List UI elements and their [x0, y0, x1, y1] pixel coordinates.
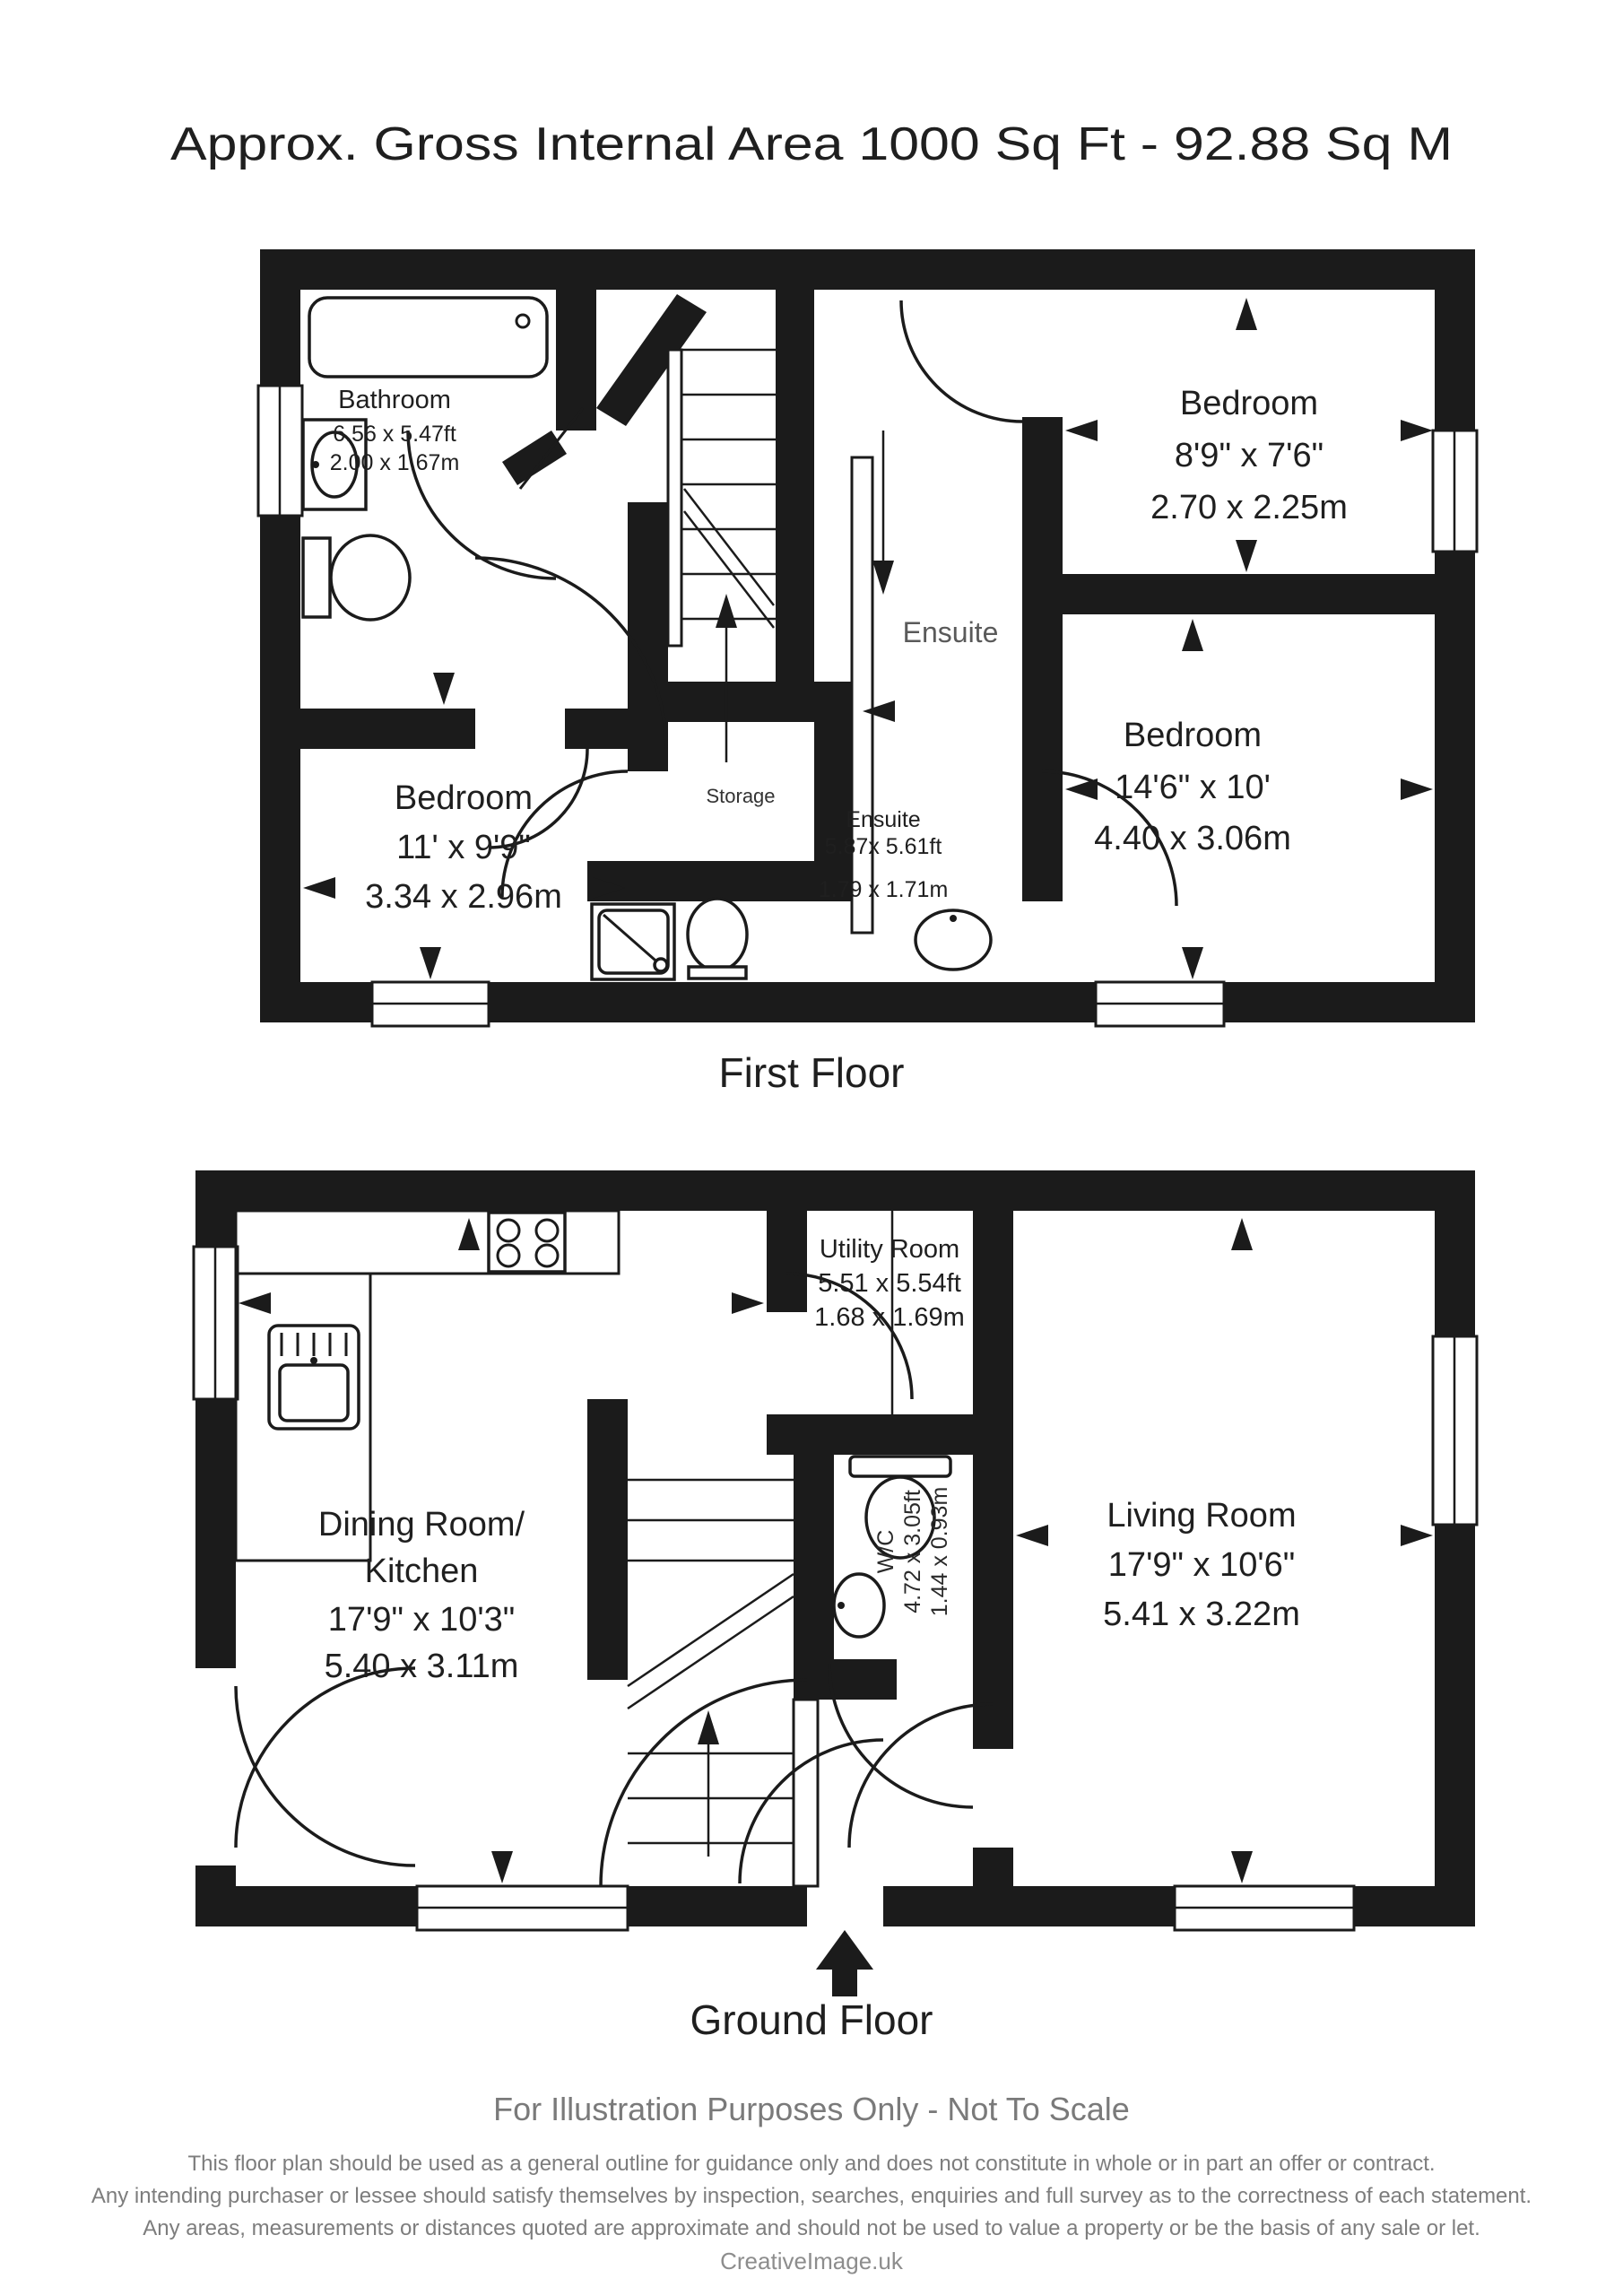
- ensuite-big-label: Ensuite: [903, 616, 999, 648]
- stair-down-arrow: [872, 430, 894, 595]
- window: [1433, 1336, 1477, 1525]
- wc-sink: [834, 1574, 884, 1637]
- dining-label-line2: Kitchen: [365, 1552, 479, 1590]
- footer-disclaimer-line3: Any areas, measurements or distances quo…: [143, 2216, 1480, 2240]
- bathroom-label: Bathroom: [338, 386, 451, 414]
- bathroom-toilet: [303, 535, 410, 620]
- ensuite-sink: [916, 910, 991, 970]
- ensuite-fixtures: [592, 899, 991, 979]
- bathtub: [309, 298, 547, 377]
- footer: For Illustration Purposes Only - Not To …: [91, 2091, 1532, 2274]
- floorplan-canvas: Approx. Gross Internal Area 1000 Sq Ft -…: [0, 0, 1623, 2296]
- bedroom-topright-dims-m: 2.70 x 2.25m: [1150, 489, 1348, 526]
- measure-arrow-up: [1236, 298, 1257, 330]
- bedroom-right-dims-ft: 14'6" x 10': [1115, 769, 1271, 806]
- page-title: Approx. Gross Internal Area 1000 Sq Ft -…: [170, 118, 1453, 170]
- footer-brand: CreativeImage.uk: [720, 2248, 904, 2274]
- bathroom-dims-m: 2.00 x 1.67m: [330, 450, 460, 475]
- measure-arrow-down: [420, 947, 441, 979]
- bedroom-left-dims-m: 3.34 x 2.96m: [365, 878, 562, 916]
- measure-arrow-up: [1182, 619, 1203, 651]
- measure-arrow-down: [491, 1851, 513, 1883]
- stair-treads: [681, 350, 776, 619]
- measure-arrow-right: [1401, 778, 1433, 800]
- measure-arrow-down: [1231, 1851, 1253, 1883]
- measure-arrow-up: [458, 1218, 480, 1250]
- bedroom-left-dims-ft: 11' x 9'9": [396, 829, 531, 866]
- ensuite-small-dims-m: 1.79 x 1.71m: [819, 877, 949, 902]
- first-floor-plan: Bathroom 6.56 x 5.47ft 2.00 x 1.67m Bedr…: [258, 249, 1477, 1096]
- wc-label: W/C: [873, 1530, 898, 1574]
- bathroom-dims-ft: 6.56 x 5.47ft: [333, 422, 456, 447]
- window: [194, 1247, 238, 1399]
- measure-arrow-right: [732, 1292, 764, 1314]
- measure-arrow-right: [1401, 1525, 1433, 1546]
- door-arc: [849, 1704, 993, 1848]
- bedroom-right-label: Bedroom: [1124, 717, 1262, 754]
- ensuite-small-label: Ensuite: [846, 807, 920, 832]
- living-dims-ft: 17'9" x 10'6": [1108, 1546, 1295, 1584]
- utility-label: Utility Room: [820, 1235, 959, 1264]
- bedroom-topright-dims-ft: 8'9" x 7'6": [1175, 437, 1324, 474]
- measure-arrow-up: [1231, 1218, 1253, 1250]
- ensuite-toilet: [688, 899, 747, 978]
- stair-up-arrow: [716, 594, 737, 762]
- french-doors: [236, 1668, 415, 1865]
- bedroom-right-dims-m: 4.40 x 3.06m: [1094, 820, 1291, 857]
- window: [1433, 430, 1477, 552]
- utility-dims-m: 1.68 x 1.69m: [814, 1303, 965, 1332]
- window: [372, 982, 489, 1026]
- first-floor-caption: First Floor: [719, 1049, 905, 1096]
- measure-arrow-left: [1016, 1525, 1048, 1546]
- stair-up-arrow: [698, 1710, 719, 1857]
- measure-arrow-down: [1236, 540, 1257, 572]
- kitchen-sink: [269, 1326, 359, 1429]
- ground-floor-caption: Ground Floor: [690, 1996, 933, 2043]
- dining-dims-m: 5.40 x 3.11m: [325, 1648, 519, 1685]
- measure-arrow-left: [1065, 420, 1098, 441]
- window: [1175, 1886, 1354, 1930]
- ensuite-sliding-door: [852, 457, 872, 933]
- footer-disclaimer-line1: This floor plan should be used as a gene…: [187, 2152, 1435, 2176]
- door-arc: [601, 1680, 807, 1886]
- storage-label: Storage: [706, 785, 775, 807]
- measure-arrow-left: [1065, 778, 1098, 800]
- utility-dims-ft: 5.51 x 5.54ft: [818, 1269, 961, 1298]
- ensuite-small-dims-ft: 5.87x 5.61ft: [825, 834, 942, 859]
- shower: [592, 904, 674, 979]
- window: [417, 1886, 628, 1930]
- measure-arrow-left: [239, 1292, 271, 1314]
- stair-banister: [794, 1700, 818, 1886]
- hob: [489, 1213, 565, 1272]
- stair-break-line: [628, 1574, 794, 1709]
- wc-dims-m: 1.44 x 0.93m: [927, 1487, 952, 1617]
- footer-disclaimer-line2: Any intending purchaser or lessee should…: [91, 2184, 1532, 2208]
- dining-label-line1: Dining Room/: [318, 1506, 525, 1544]
- door-arc: [901, 300, 1022, 422]
- ground-floor-plan: Utility Room 5.51 x 5.54ft 1.68 x 1.69m …: [194, 1170, 1477, 2043]
- measure-arrow-right: [1401, 420, 1433, 441]
- staircase-ground-floor: [628, 1480, 818, 1886]
- measure-arrow-down: [1182, 947, 1203, 979]
- entrance-arrow: [816, 1930, 873, 1996]
- measure-arrow-down: [433, 673, 455, 705]
- dining-dims-ft: 17'9" x 10'3": [328, 1601, 515, 1639]
- measure-arrow-left: [303, 877, 335, 899]
- wc-dims-ft: 4.72 x 3.05ft: [900, 1490, 925, 1613]
- window: [1096, 982, 1224, 1026]
- bedroom-left-label: Bedroom: [395, 779, 533, 817]
- living-dims-m: 5.41 x 3.22m: [1103, 1596, 1300, 1633]
- floorplan-page: Approx. Gross Internal Area 1000 Sq Ft -…: [0, 0, 1623, 2296]
- stair-treads: [628, 1480, 794, 1843]
- window: [258, 386, 302, 516]
- bedroom-topright-label: Bedroom: [1180, 385, 1318, 422]
- living-label: Living Room: [1107, 1497, 1296, 1535]
- footer-notice: For Illustration Purposes Only - Not To …: [493, 2091, 1130, 2127]
